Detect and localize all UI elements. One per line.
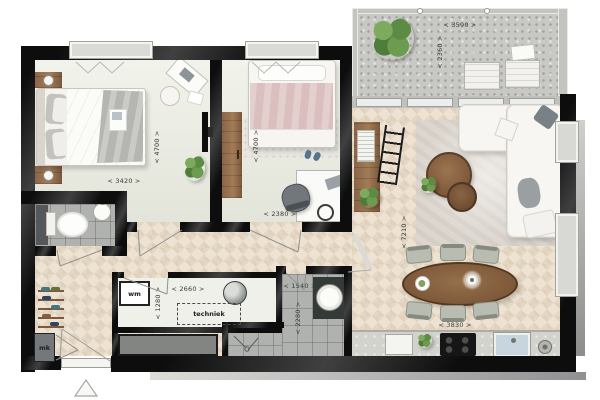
master-window (70, 42, 152, 58)
dim-bedroom2-depth: < 4700 > (253, 129, 260, 162)
balcony-rail-left (352, 8, 358, 98)
washing-machine-label: wm (128, 290, 141, 298)
wall-bottom (111, 356, 576, 372)
wall-utility-top-b (168, 272, 282, 278)
balcony-rail-top (352, 8, 564, 14)
tv-mount (208, 127, 213, 137)
dining-chair (472, 245, 500, 265)
lamp-icon (43, 75, 54, 86)
dining-chair (472, 301, 500, 321)
balcony-lounger (505, 60, 540, 88)
glass-pane (407, 98, 453, 107)
bed-fold (250, 129, 333, 146)
laptop-icon (179, 67, 195, 82)
wall-storage-left (112, 333, 118, 356)
plate (415, 276, 430, 291)
wall-utility-left (112, 272, 118, 333)
dim-living-width: < 3830 > (438, 322, 471, 329)
desk-chair (160, 86, 180, 106)
washing-machine: wm (119, 281, 150, 306)
dim-master-depth: < 4700 > (154, 130, 161, 163)
dim-bedroom2-width: < 2380 > (263, 211, 296, 218)
wall-master-bottom-b (180, 222, 222, 232)
dim-master-width: < 3420 > (107, 178, 140, 185)
meter-cupboard-label: mk (39, 344, 50, 352)
pendant-lamp-icon (462, 270, 482, 290)
wardrobe-handle (237, 150, 239, 159)
faucet-icon (511, 338, 516, 343)
toilet-sink (93, 203, 111, 221)
wardrobe (222, 112, 242, 198)
dim-bathroom-depth: < 2280 > (295, 301, 302, 334)
north-arrow-icon (75, 380, 97, 396)
shoe-rack (38, 284, 64, 328)
plant-icon (417, 333, 432, 348)
counter-knob (538, 340, 552, 354)
round-basket (223, 281, 247, 305)
master-bed (36, 88, 146, 166)
bed-decor (109, 109, 127, 131)
wall-shower-left (222, 322, 228, 356)
dining-chair (440, 305, 466, 322)
technical-area: techniek (177, 303, 241, 325)
lamp-icon (43, 170, 54, 181)
bevel-bottom (150, 372, 586, 380)
dim-bathroom-width: < 1540 > (283, 283, 316, 290)
wall-toilet-top (21, 191, 127, 204)
wall-bedroom2-living (340, 60, 352, 232)
bathroom-sink (316, 284, 343, 311)
storage-shaft (118, 334, 218, 356)
plant-icon (420, 176, 437, 193)
plant-icon (184, 154, 205, 181)
toilet-tank (46, 212, 56, 236)
wall-toilet-right (115, 191, 127, 249)
nightstand (34, 72, 62, 88)
wall-master-bottom-a (127, 222, 137, 232)
balcony-lounger (464, 62, 500, 90)
dining-chair (440, 244, 466, 261)
wall-bathroom-top-a (282, 266, 286, 274)
bedroom2-window (246, 42, 318, 58)
balcony-rail-right (558, 8, 568, 96)
headphones-icon (317, 204, 334, 221)
wall-bedroom2-bottom-a (222, 222, 250, 232)
living-window-upper (556, 122, 578, 162)
wall-bedroom2-bottom-b (302, 222, 340, 232)
wall-toilet-bottom-a (35, 246, 56, 256)
glass-pane (356, 98, 402, 107)
entrance-threshold (61, 358, 111, 368)
floor-plan: mk wm techniek < (0, 0, 600, 400)
coffee-table-small (447, 182, 477, 212)
dining-chair (405, 245, 433, 265)
wall-left (21, 46, 35, 372)
nightstand (34, 166, 62, 184)
plant-icon (358, 186, 380, 208)
wall-bathroom-right (344, 266, 352, 356)
bedroom2-bed (248, 60, 336, 148)
kitchen-counter (352, 330, 560, 356)
dim-utility-depth: < 1280 > (155, 286, 162, 319)
balcony-table (510, 44, 535, 61)
wall-toilet-bottom-b (102, 246, 127, 256)
dim-balcony-depth: < 2360 > (437, 35, 444, 68)
cooktop-icon (440, 333, 476, 356)
bed-headboard (37, 89, 45, 165)
kitchen-cabinet (385, 334, 413, 355)
dining-chair (405, 301, 433, 321)
wall-bedroom-divider (210, 60, 222, 222)
dim-living-depth: < 7210 > (401, 215, 408, 248)
bed-pillow (258, 65, 326, 81)
kitchen-sink (494, 333, 530, 357)
meter-cupboard: mk (34, 333, 55, 362)
balcony-plant-icon (370, 16, 414, 60)
toilet-icon (56, 211, 89, 238)
living-window-lower (556, 214, 578, 296)
bed-duvet (250, 83, 333, 133)
sideboard-slats (357, 130, 375, 162)
dim-balcony-width: < 3590 > (443, 22, 476, 29)
dim-utility-width: < 2660 > (171, 286, 204, 293)
technical-area-label: techniek (193, 310, 225, 318)
